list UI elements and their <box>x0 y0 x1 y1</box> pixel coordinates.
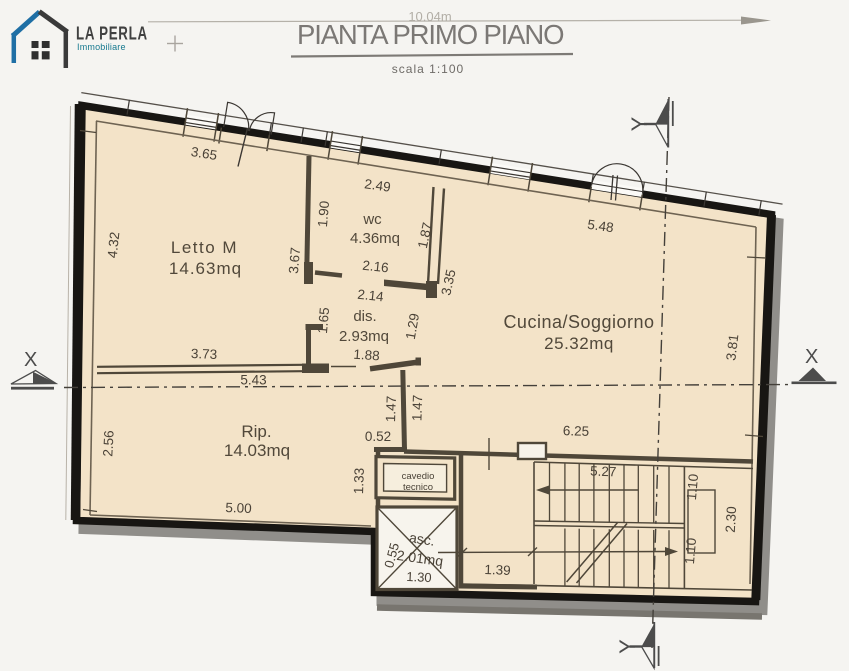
svg-text:1.65: 1.65 <box>315 307 332 334</box>
svg-text:1.30: 1.30 <box>406 569 432 585</box>
svg-text:3.73: 3.73 <box>191 346 218 362</box>
svg-text:25.32mq: 25.32mq <box>544 334 614 353</box>
svg-text:5.27: 5.27 <box>590 463 617 479</box>
svg-text:Letto M: Letto M <box>171 238 238 257</box>
svg-text:1.90: 1.90 <box>315 200 332 227</box>
svg-text:4.36mq: 4.36mq <box>350 230 400 247</box>
svg-text:14.63mq: 14.63mq <box>169 259 242 278</box>
svg-text:3.81: 3.81 <box>723 333 741 361</box>
svg-text:tecnico: tecnico <box>403 482 433 493</box>
svg-text:dis.: dis. <box>353 308 376 325</box>
svg-text:1.47: 1.47 <box>383 396 399 423</box>
svg-text:0.52: 0.52 <box>365 429 391 444</box>
svg-text:X: X <box>805 346 818 368</box>
svg-text:3.67: 3.67 <box>286 247 303 274</box>
svg-text:4.32: 4.32 <box>105 231 123 259</box>
svg-text:1.39: 1.39 <box>484 562 511 578</box>
svg-text:Immobiliare: Immobiliare <box>77 42 126 52</box>
svg-text:14.03mq: 14.03mq <box>224 441 290 460</box>
svg-text:2.30: 2.30 <box>723 506 739 533</box>
svg-text:X: X <box>24 349 37 371</box>
svg-text:2.56: 2.56 <box>100 430 116 457</box>
svg-text:5.00: 5.00 <box>225 500 252 516</box>
svg-text:1.88: 1.88 <box>353 347 380 364</box>
svg-text:scala 1:100: scala 1:100 <box>392 62 464 76</box>
svg-text:wc: wc <box>362 211 382 228</box>
svg-text:LA PERLA: LA PERLA <box>76 23 148 44</box>
svg-text:6.25: 6.25 <box>563 423 590 439</box>
svg-text:PIANTA PRIMO PIANO: PIANTA PRIMO PIANO <box>297 19 565 50</box>
svg-text:Rip.: Rip. <box>241 422 271 441</box>
svg-text:Cucina/Soggiorno: Cucina/Soggiorno <box>503 312 654 332</box>
svg-text:2.93mq: 2.93mq <box>339 328 389 345</box>
svg-text:1.10: 1.10 <box>684 473 701 500</box>
svg-text:1.47: 1.47 <box>409 395 425 422</box>
svg-text:2.14: 2.14 <box>357 287 385 305</box>
svg-text:5.43: 5.43 <box>240 373 266 388</box>
svg-text:1.33: 1.33 <box>351 468 367 495</box>
svg-text:cavedio: cavedio <box>402 471 435 482</box>
svg-text:1.10: 1.10 <box>682 537 699 564</box>
svg-text:2.16: 2.16 <box>362 258 390 276</box>
